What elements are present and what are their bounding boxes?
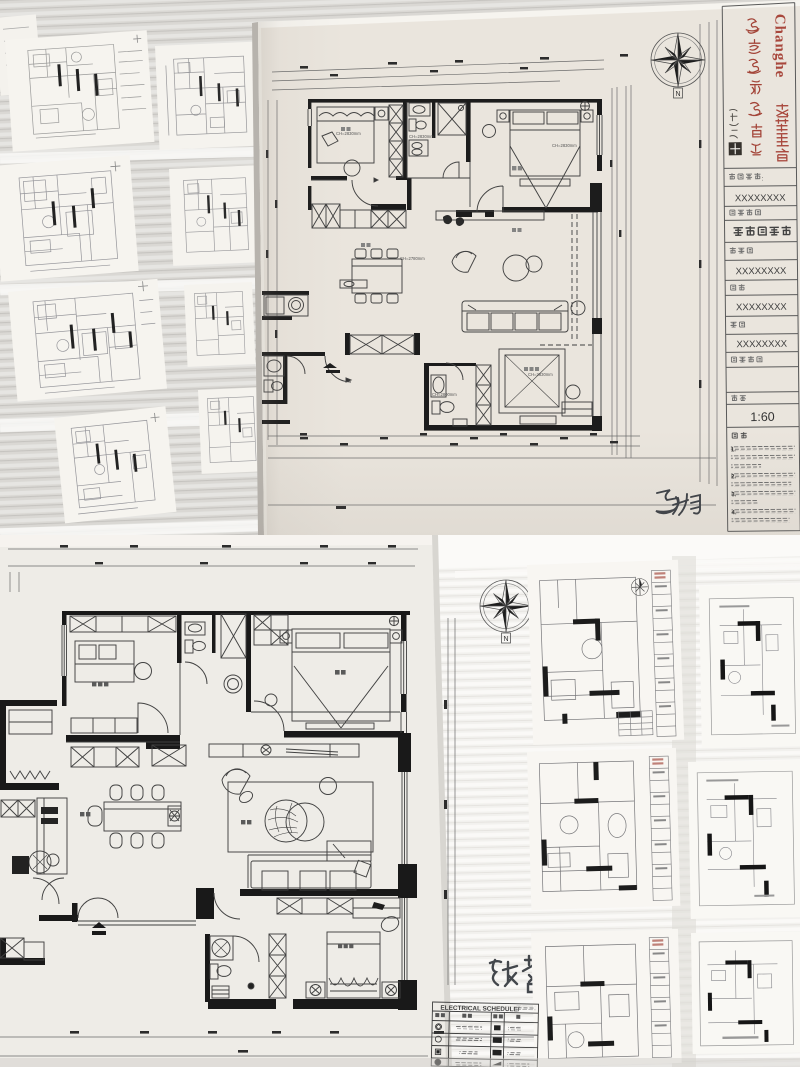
svg-text:Changhe: Changhe xyxy=(771,14,788,79)
svg-text:N: N xyxy=(675,91,680,98)
svg-text::: : xyxy=(762,175,764,182)
svg-text:XXXXXXXX: XXXXXXXX xyxy=(736,302,787,314)
svg-text:CH=2800mm: CH=2800mm xyxy=(432,392,457,397)
svg-text:CH=2830mm: CH=2830mm xyxy=(528,372,553,377)
svg-text:CH=2830mm: CH=2830mm xyxy=(409,134,434,139)
svg-text:XXXXXXXX: XXXXXXXX xyxy=(736,266,787,278)
svg-text:1:60: 1:60 xyxy=(750,410,775,424)
svg-text:XXXXXXXX: XXXXXXXX xyxy=(735,193,786,205)
svg-text:XXXXXXXX: XXXXXXXX xyxy=(736,339,787,351)
svg-text:CH=2830mm: CH=2830mm xyxy=(552,143,577,148)
svg-text:CH=2780mm: CH=2780mm xyxy=(400,256,425,261)
svg-text:N: N xyxy=(503,636,508,643)
